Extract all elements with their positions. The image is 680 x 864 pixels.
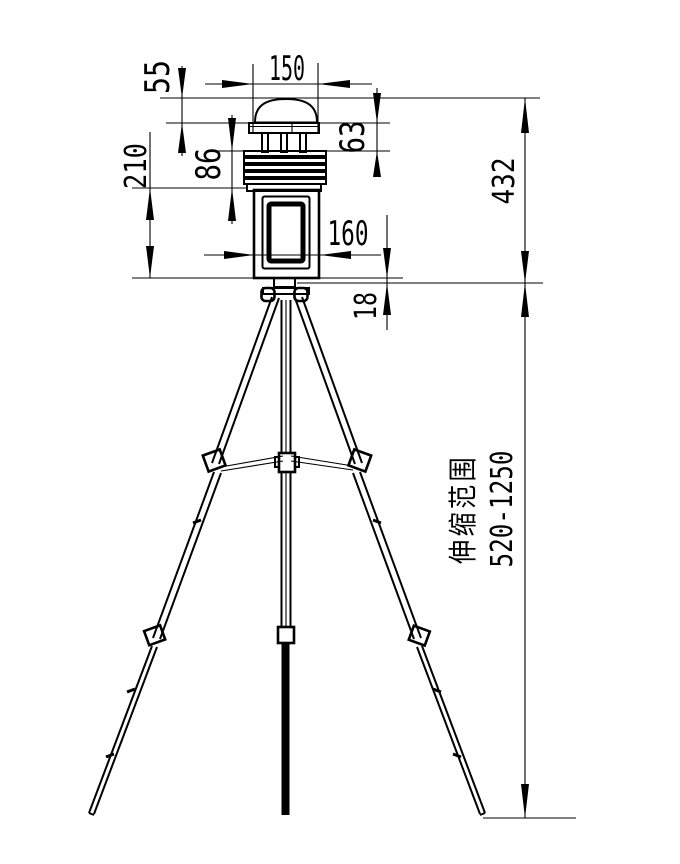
arrowhead-right-icon xyxy=(222,80,253,88)
dim-adapter-height-label: 18 xyxy=(349,292,384,320)
leg-lower-line xyxy=(89,646,152,813)
louver-fin xyxy=(244,172,326,177)
dim-telescope-text-label: 伸缩范围 xyxy=(446,454,480,564)
leg-joint-tick xyxy=(373,520,381,523)
center-column xyxy=(275,300,299,815)
dim-cap-width-label: 150 xyxy=(269,49,305,89)
leg-joint-tick xyxy=(453,754,461,757)
arrowhead-down-icon xyxy=(228,118,236,151)
arrowhead-up-icon xyxy=(521,98,529,133)
arrowhead-down-icon xyxy=(373,93,381,123)
leg-clamp xyxy=(203,449,226,471)
dim-shield-height: 86 xyxy=(189,115,236,224)
leg-upper-line xyxy=(295,298,355,464)
louver-fin xyxy=(244,151,326,156)
technical-drawing: 150 55 63 86 210 160 18 xyxy=(0,0,680,864)
dim-telescope-range: 伸缩范围 520-1250 xyxy=(446,283,529,818)
arrowhead-down-icon xyxy=(178,68,186,98)
leg-mid-line xyxy=(360,472,421,638)
arrowhead-down-icon xyxy=(383,248,391,278)
louver-stack xyxy=(244,151,326,191)
leg-joint-tick xyxy=(193,520,201,523)
dome xyxy=(255,99,317,122)
body-window-inner xyxy=(269,204,303,261)
dim-body-height-label: 210 xyxy=(119,143,154,189)
column-clamp xyxy=(278,627,294,643)
arrowhead-left-icon xyxy=(318,80,350,88)
arrowhead-up-icon xyxy=(521,283,529,317)
arrowhead-up-icon xyxy=(228,188,236,221)
arrowhead-up-icon xyxy=(178,123,186,153)
dim-body-height: 210 xyxy=(119,132,154,278)
dim-head-height-label: 63 xyxy=(333,121,373,154)
post xyxy=(300,133,306,152)
dim-body-width-label: 160 xyxy=(328,214,369,254)
leg-upper-line xyxy=(219,298,279,464)
dim-telescope-range-label: 520-1250 xyxy=(485,451,520,568)
leg-mid-line xyxy=(353,473,414,639)
dim-dome-height: 55 xyxy=(138,60,186,156)
arrowhead-down-icon xyxy=(521,784,529,818)
dim-total-height-label: 432 xyxy=(487,158,522,205)
arrowhead-up-icon xyxy=(146,188,154,220)
louver-fin xyxy=(244,165,326,170)
arrowhead-right-icon xyxy=(224,251,254,259)
louver-fin xyxy=(244,158,326,163)
brace-left xyxy=(221,461,283,471)
drawing-canvas: 150 55 63 86 210 160 18 xyxy=(0,0,680,864)
leg-upper-line xyxy=(212,297,272,463)
post xyxy=(262,133,268,152)
arrowhead-up-icon xyxy=(373,151,381,177)
brace-right xyxy=(291,456,353,466)
leg-lower-line xyxy=(422,646,485,813)
dome-cap xyxy=(249,123,319,133)
left-leg xyxy=(89,297,279,815)
arrowhead-down-icon xyxy=(146,246,154,278)
leg-upper-line xyxy=(302,297,362,463)
dim-head-height: 63 xyxy=(333,88,381,177)
brace-right xyxy=(291,461,353,470)
leg-mid-line xyxy=(153,472,214,638)
dim-total-height: 432 xyxy=(487,98,529,283)
leg-lower-line xyxy=(94,647,157,814)
leg-lower-line xyxy=(417,647,480,814)
brace-left xyxy=(221,456,283,467)
dim-shield-height-label: 86 xyxy=(189,148,229,181)
leg-mid-line xyxy=(160,473,221,639)
column-lower-shaft xyxy=(282,643,290,815)
spreader-braces xyxy=(221,456,353,471)
dim-cap-width: 150 xyxy=(205,49,372,89)
post xyxy=(281,133,287,152)
weather-station xyxy=(244,99,326,287)
support-posts xyxy=(262,133,306,152)
leg-joint-tick xyxy=(106,754,114,757)
dim-dome-height-label: 55 xyxy=(138,60,178,94)
leg-clamp xyxy=(348,449,371,471)
arrowhead-down-icon xyxy=(521,251,529,283)
tripod xyxy=(89,288,485,815)
mount-adapter xyxy=(274,278,295,287)
arrowhead-up-icon xyxy=(383,283,391,315)
